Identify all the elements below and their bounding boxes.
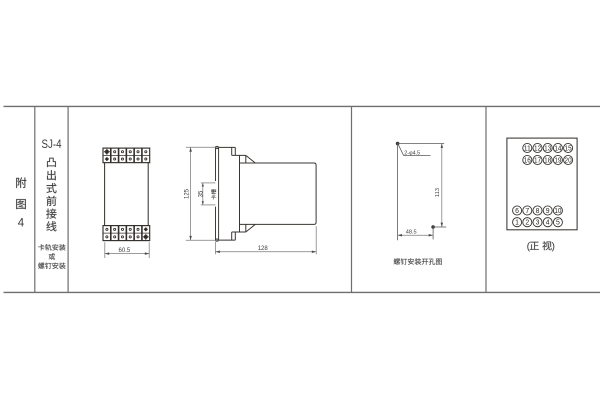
svg-text:19: 19 [554, 157, 561, 164]
svg-text:1: 1 [515, 220, 519, 227]
svg-text:17: 17 [534, 157, 541, 164]
svg-text:9: 9 [546, 208, 550, 215]
svg-text:2: 2 [525, 220, 529, 227]
svg-text:113: 113 [435, 188, 441, 197]
svg-text:SJ-4: SJ-4 [42, 137, 62, 151]
svg-text:14: 14 [554, 145, 561, 152]
svg-text:8: 8 [536, 208, 540, 215]
svg-text:10: 10 [554, 208, 561, 215]
svg-text:16: 16 [524, 157, 531, 164]
svg-text:13: 13 [544, 145, 551, 152]
svg-text:15: 15 [565, 145, 572, 152]
svg-text:35: 35 [198, 190, 204, 197]
svg-text:7: 7 [525, 208, 529, 215]
svg-text:125: 125 [185, 188, 191, 199]
svg-text:): ) [552, 241, 556, 253]
svg-text:(: ( [527, 241, 531, 253]
svg-text:4: 4 [18, 218, 25, 230]
svg-text:12: 12 [534, 145, 541, 152]
svg-text:20: 20 [565, 157, 572, 164]
svg-text:18: 18 [544, 157, 551, 164]
svg-text:3: 3 [536, 220, 540, 227]
svg-text:5: 5 [556, 220, 560, 227]
svg-text:128: 128 [258, 246, 269, 252]
svg-text:4: 4 [546, 220, 550, 227]
svg-text:60.5: 60.5 [119, 248, 131, 254]
svg-text:11: 11 [524, 145, 531, 152]
svg-text:6: 6 [515, 208, 519, 215]
svg-text:48.5: 48.5 [406, 229, 417, 235]
svg-text:2-φ4.5: 2-φ4.5 [404, 151, 420, 157]
